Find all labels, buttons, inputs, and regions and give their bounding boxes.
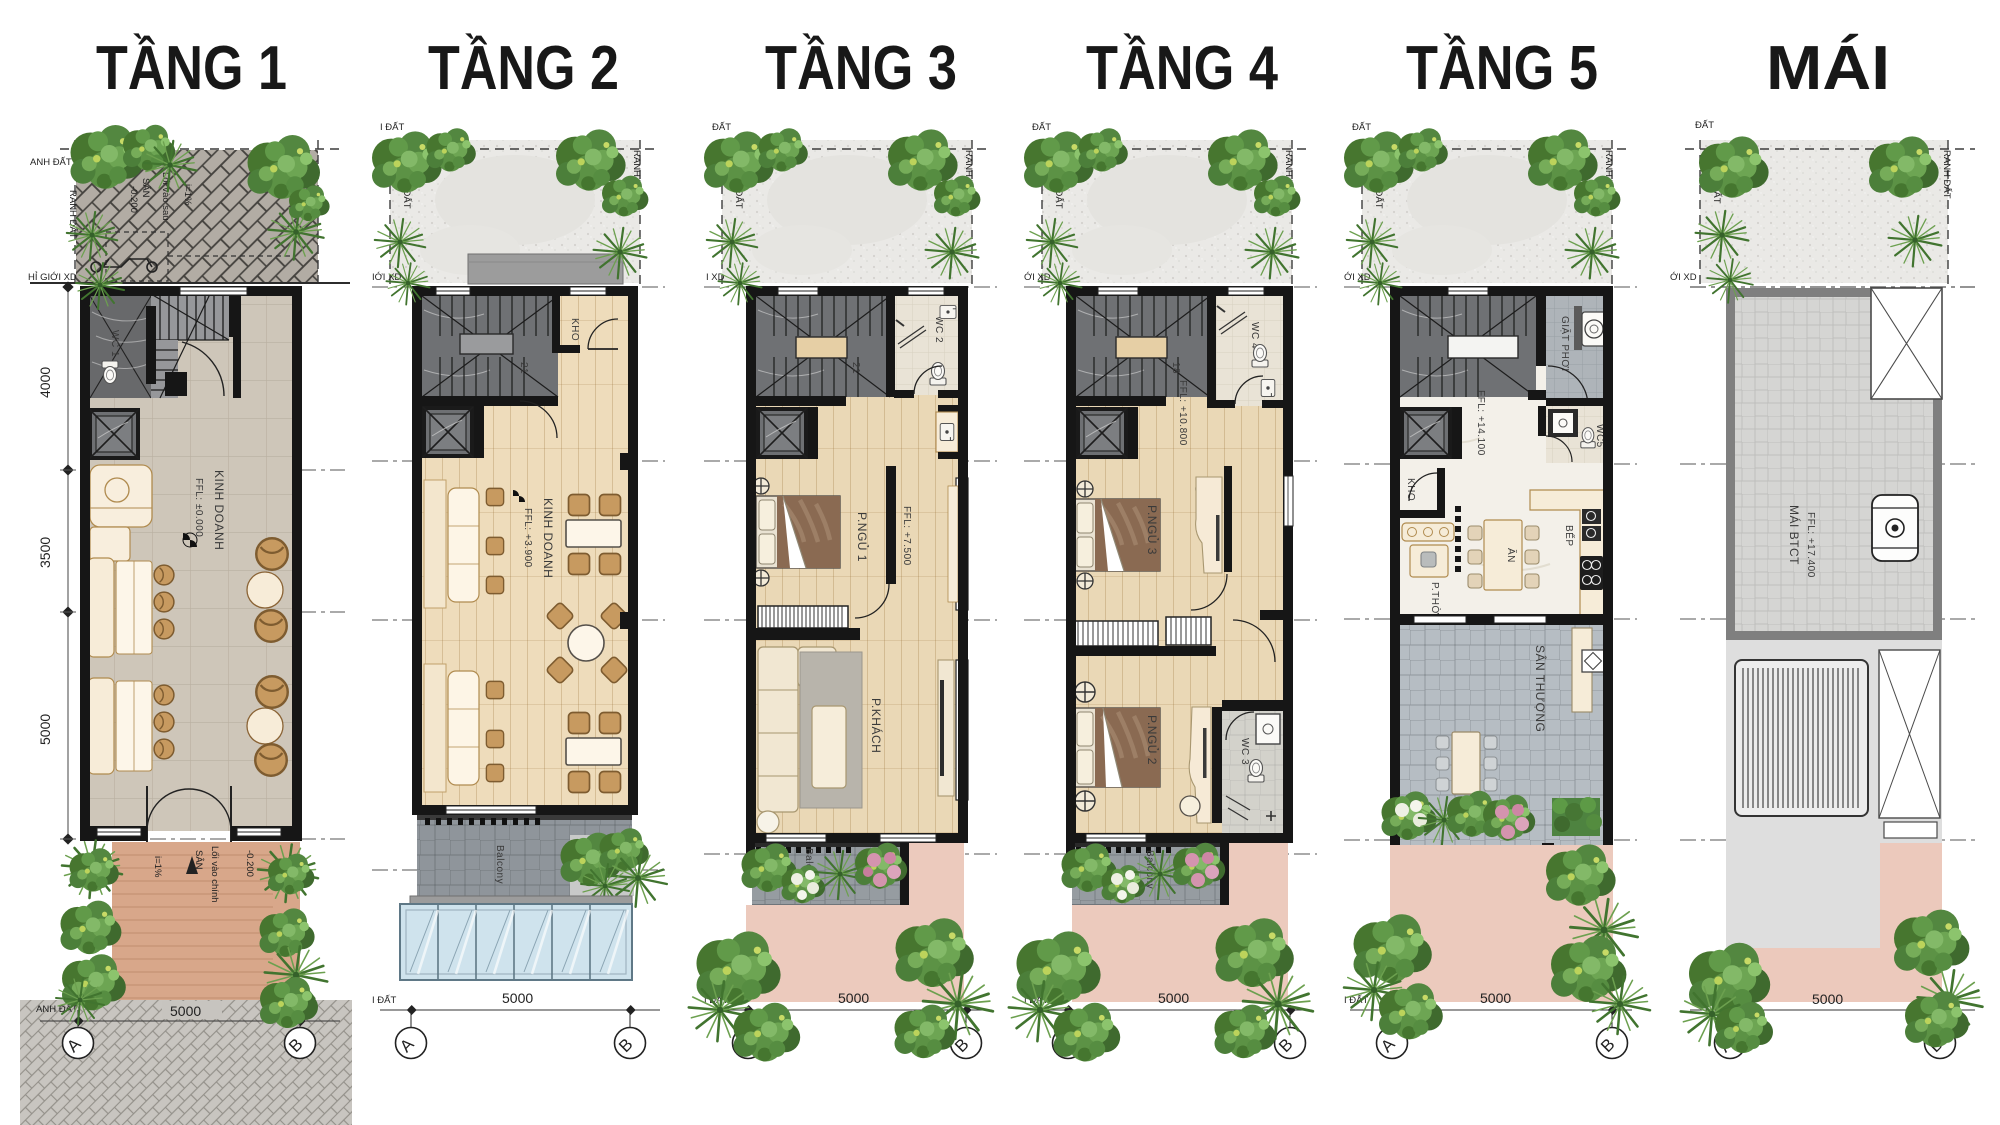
svg-text:P.KHÁCH: P.KHÁCH [869, 698, 884, 753]
svg-text:TẦNG 4: TẦNG 4 [1086, 34, 1278, 103]
svg-text:TẦNG 1: TẦNG 1 [96, 34, 287, 103]
svg-text:Balcony: Balcony [494, 845, 505, 884]
svg-text:WC 1: WC 1 [109, 330, 120, 357]
svg-text:WC 3: WC 3 [1239, 738, 1250, 765]
svg-text:WC 2: WC 2 [933, 316, 944, 343]
svg-text:FFL: +14.100: FFL: +14.100 [1475, 390, 1486, 456]
svg-text:GIẶT PHƠI: GIẶT PHƠI [1559, 316, 1572, 372]
svg-text:ĂN: ĂN [1505, 548, 1518, 563]
svg-text:TẦNG 5: TẦNG 5 [1406, 34, 1598, 103]
svg-text:ĐẤT: ĐẤT [712, 122, 731, 133]
svg-text:KINH DOANH: KINH DOANH [212, 470, 226, 550]
svg-text:21: 21 [518, 362, 529, 374]
svg-text:FFL: +10.800: FFL: +10.800 [1177, 380, 1188, 446]
svg-text:4000: 4000 [37, 367, 53, 398]
svg-text:SÂN THƯỢNG: SÂN THƯỢNG [1533, 645, 1548, 732]
svg-text:5000: 5000 [1812, 991, 1843, 1007]
svg-text:RANH ĐẤT: RANH ĐẤT [1941, 150, 1952, 199]
svg-text:5000: 5000 [838, 990, 869, 1006]
svg-text:ĐẤT: ĐẤT [1352, 122, 1371, 133]
svg-text:FFL: ±0.000: FFL: ±0.000 [193, 478, 204, 537]
svg-text:5000: 5000 [37, 714, 53, 745]
svg-text:P.NGỦ 2: P.NGỦ 2 [1145, 715, 1160, 765]
svg-text:HỈ GIỚI XD: HỈ GIỚI XD [28, 271, 77, 283]
svg-text:TẦNG 3: TẦNG 3 [765, 34, 957, 103]
svg-text:P.NGỦ 1: P.NGỦ 1 [855, 512, 870, 562]
svg-text:ĐẤT: ĐẤT [1695, 120, 1714, 131]
svg-text:i=1%: i=1% [182, 184, 193, 206]
svg-text:ANH ĐẤT: ANH ĐẤT [30, 157, 72, 168]
svg-text:5000: 5000 [502, 990, 533, 1006]
svg-text:FFL: +7.500: FFL: +7.500 [901, 506, 912, 566]
svg-text:21: 21 [850, 362, 861, 374]
svg-text:MÁI: MÁI [1766, 34, 1890, 103]
svg-text:5000: 5000 [170, 1003, 201, 1019]
svg-text:3500: 3500 [37, 537, 53, 568]
svg-text:FFL: +17.400: FFL: +17.400 [1805, 512, 1816, 578]
svg-text:Lối vào chính: Lối vào chính [209, 846, 220, 903]
svg-text:FFL: +3.900: FFL: +3.900 [522, 508, 533, 568]
svg-text:ỚI XD: ỚI XD [1670, 272, 1697, 283]
svg-text:18: 18 [1170, 362, 1181, 374]
svg-text:-0.200: -0.200 [244, 850, 255, 877]
svg-text:TẦNG 2: TẦNG 2 [428, 34, 619, 103]
svg-text:I ĐẤT: I ĐẤT [380, 122, 404, 133]
svg-text:I ĐẤT: I ĐẤT [372, 995, 396, 1006]
svg-text:P.NGỦ 3: P.NGỦ 3 [1145, 505, 1160, 555]
svg-text:KHO: KHO [1405, 478, 1416, 501]
svg-text:BẾP: BẾP [1563, 525, 1576, 547]
svg-text:P.THỜ: P.THỜ [1429, 582, 1442, 615]
svg-text:MÁI BTCT: MÁI BTCT [1787, 505, 1802, 565]
svg-text:KINH DOANH: KINH DOANH [541, 498, 555, 578]
svg-text:RANH ĐẤT: RANH ĐẤT [67, 190, 78, 239]
svg-text:5000: 5000 [1158, 990, 1189, 1006]
svg-text:ĐẤT: ĐẤT [1032, 122, 1051, 133]
svg-text:i=1%: i=1% [152, 856, 163, 878]
svg-text:-0.200: -0.200 [128, 186, 139, 213]
svg-text:5000: 5000 [1480, 990, 1511, 1006]
svg-text:SÂN: SÂN [193, 850, 204, 870]
svg-text:KHO: KHO [569, 318, 580, 341]
